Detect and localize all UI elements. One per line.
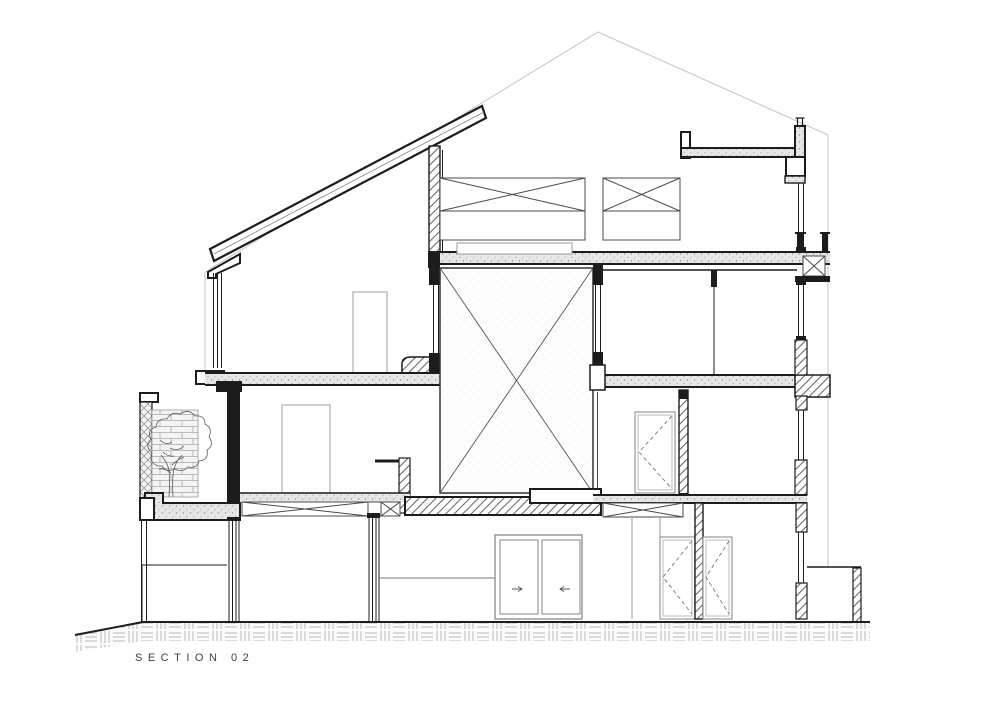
roof-terrace-channel	[681, 118, 805, 183]
first-floor-left-room	[240, 405, 410, 516]
attic-wardrobe-xbox-left	[440, 178, 585, 240]
attic-ceiling-tray	[457, 243, 572, 254]
double-height-void-xbox	[440, 263, 605, 493]
right-facade-window-gf	[796, 503, 807, 619]
partition-wall	[679, 390, 688, 502]
courtyard-wall-cap	[140, 393, 158, 402]
courtyard-right-wall-cap	[216, 381, 242, 392]
door-elevation	[353, 292, 387, 373]
sliding-glass-door	[495, 535, 582, 619]
drawing-sheet: SECTION 02	[0, 0, 1000, 707]
ground-floor	[142, 503, 862, 622]
partition-head	[711, 270, 717, 287]
right-facade-window-1f	[795, 396, 807, 495]
courtyard-left-wall-foot	[140, 498, 154, 520]
second-floor-right-room	[603, 270, 807, 375]
ground	[75, 622, 870, 652]
floor-joist-xbox-wide	[242, 502, 368, 516]
courtyard-left-wall	[140, 402, 152, 498]
ground-door-right	[703, 537, 732, 619]
section-label: SECTION 02	[135, 652, 254, 664]
spandrel-wall-2f	[795, 340, 807, 375]
ground-door-left	[660, 537, 695, 619]
door-jamb-wall	[695, 503, 703, 619]
interior-door	[635, 412, 675, 493]
courtyard-right-wall	[227, 392, 240, 520]
brick-wall	[152, 410, 198, 497]
courtyard	[140, 381, 242, 520]
floor-joist-xbox-small	[381, 502, 400, 516]
second-floor-slab-right	[593, 375, 807, 387]
garden-low-wall	[807, 567, 861, 622]
balcony-slab-right	[795, 375, 830, 397]
courtyard-glazing	[227, 517, 240, 622]
garage-right-glazing	[367, 513, 380, 622]
left-facade-window	[214, 273, 222, 368]
section-drawing: SECTION 02	[0, 0, 1000, 707]
balcony-beam-xbox	[803, 256, 825, 276]
door-elevation	[282, 405, 330, 493]
door-lintel	[530, 489, 601, 503]
right-facade-window-2f	[796, 281, 806, 340]
attic-wardrobe-xbox-right	[603, 178, 680, 240]
first-floor-right-rooms	[593, 390, 807, 517]
second-floor-left-room	[196, 263, 440, 385]
floor-beam-xbox	[603, 503, 683, 517]
